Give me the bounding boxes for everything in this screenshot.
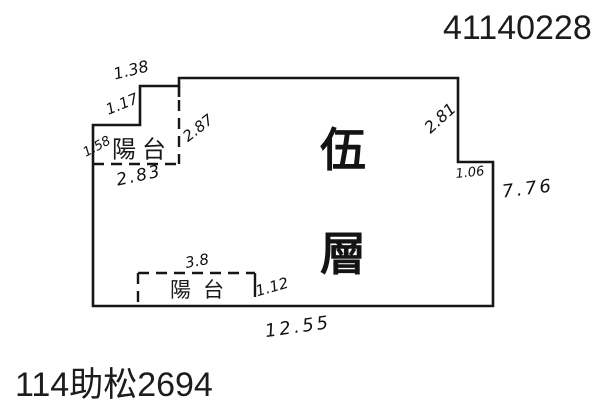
- document-number: 41140228: [443, 9, 592, 48]
- case-number: 114助松2694: [15, 357, 213, 400]
- dim-right-step-width: 1.06: [455, 164, 485, 182]
- upper-balcony-label: 陽台: [112, 130, 172, 165]
- floor-plan-document: 41140228 114助松2694 伍 層 陽台 陽台 1.38 1.17 2…: [0, 0, 602, 400]
- bottom-balcony-label: 陽台: [170, 274, 236, 304]
- floor-label-wu: 伍: [320, 114, 366, 180]
- floor-label-ceng: 層: [320, 218, 366, 284]
